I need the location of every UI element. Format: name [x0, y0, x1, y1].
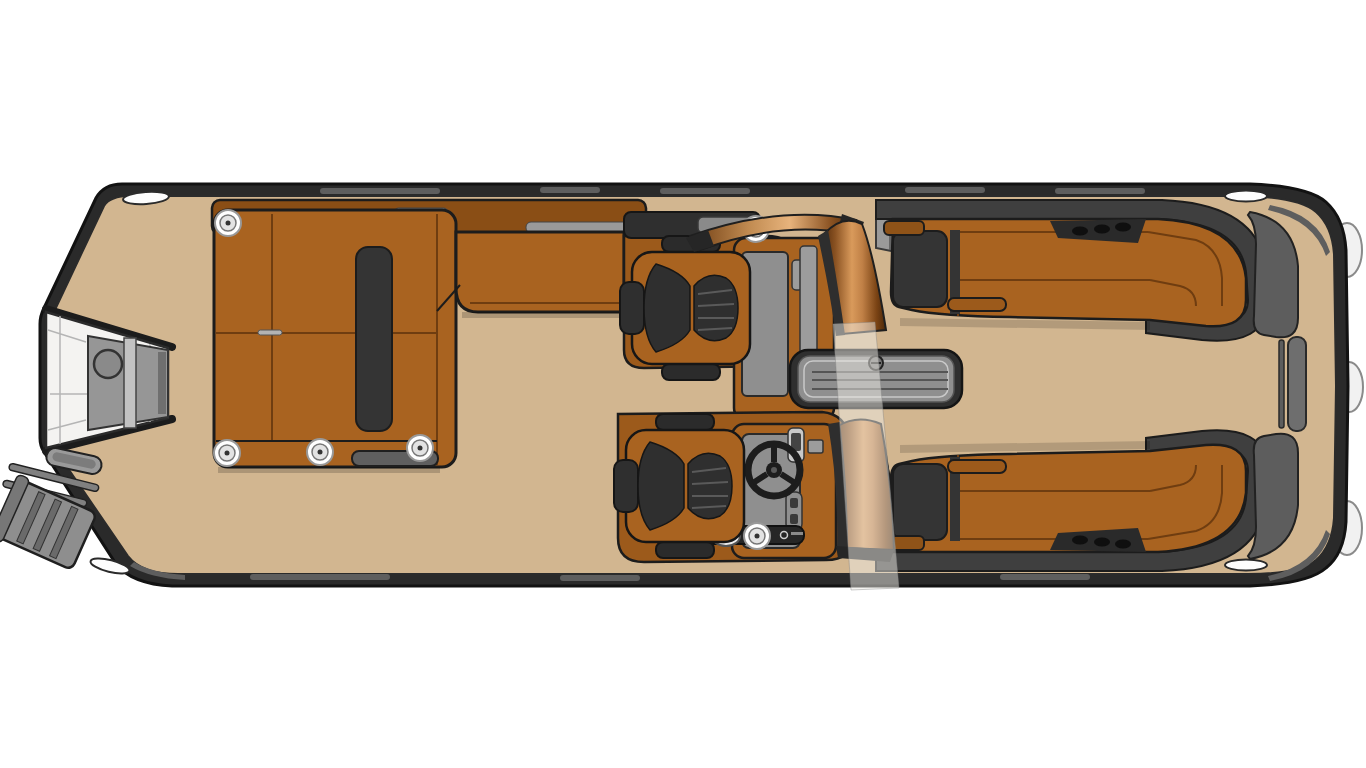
stern-gate-seam: [1279, 340, 1284, 428]
cup-holder: [407, 435, 433, 461]
bow-gate-circle-detail: [94, 350, 122, 378]
boat-floorplan: [0, 0, 1366, 768]
captain-chair-helm: [614, 414, 744, 558]
bow-lounge-back-bolster: [356, 247, 392, 431]
couch-shadow: [218, 467, 440, 473]
pontoon-floorplan-canvas: [0, 0, 1366, 768]
switch-panel: [786, 492, 802, 530]
bow-boarding-ladder: [0, 446, 103, 573]
step-detail: [791, 532, 803, 535]
captain-chair-port: [620, 236, 750, 380]
bow-gate-pad-bar: [124, 338, 136, 428]
cleat-icon: [1225, 191, 1267, 202]
switch: [790, 498, 798, 508]
cup-holder: [744, 523, 770, 549]
gauge-panel: [808, 440, 823, 453]
switch: [790, 514, 798, 524]
arm-shadow: [462, 312, 624, 318]
seam-latch: [258, 330, 282, 335]
cup-holder: [215, 210, 241, 236]
stern-gate: [1288, 337, 1306, 431]
cleat-icon: [1225, 560, 1267, 571]
bow-gate-pad-edge: [158, 352, 166, 414]
bow-lounge-arm: [456, 232, 624, 312]
cup-holder: [307, 439, 333, 465]
cup-holder: [214, 440, 240, 466]
bow-lounge-couch: [214, 210, 456, 467]
